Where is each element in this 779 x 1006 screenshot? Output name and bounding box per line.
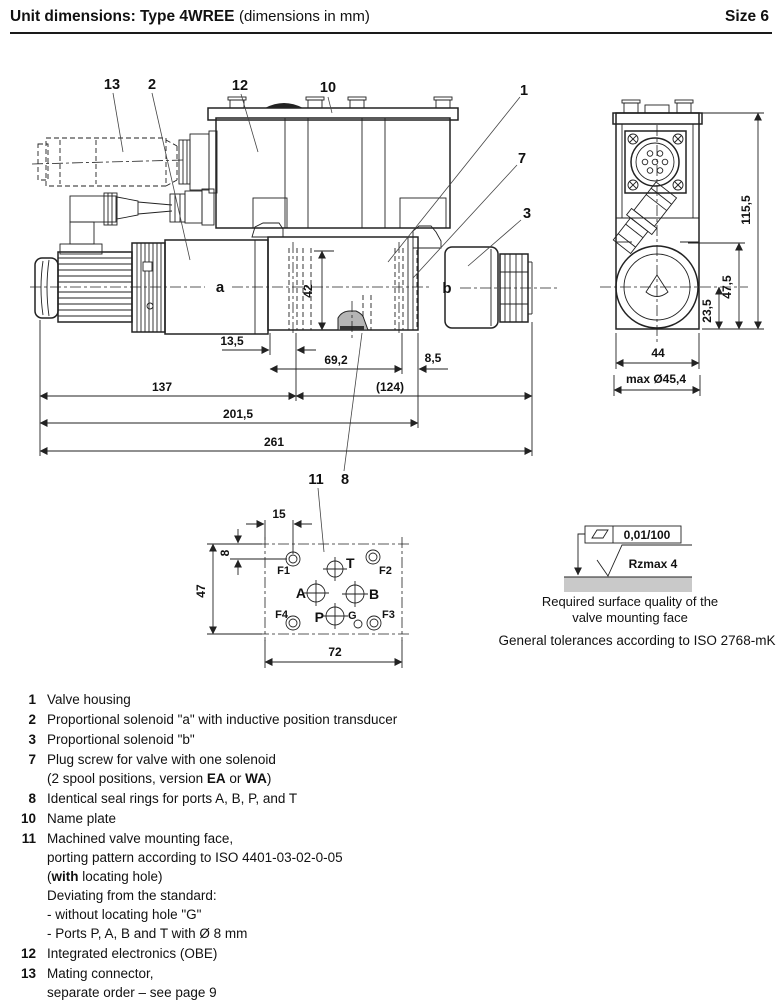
legend-item-10: 10Name plate (10, 809, 570, 828)
legend-item-7: 7Plug screw for valve with one solenoid(… (10, 750, 570, 788)
callout-1: 1 (520, 83, 528, 99)
callout-2: 2 (148, 77, 156, 93)
dim-max-diameter: max Ø45,4 (614, 372, 700, 396)
callout-7: 7 (518, 151, 526, 167)
dim-137: 137 (40, 380, 296, 396)
legend-item-text: Integrated electronics (OBE) (47, 944, 217, 963)
legend-item-number: 10 (10, 809, 36, 828)
callout-10: 10 (320, 80, 336, 96)
dim-15: 15 (246, 507, 312, 554)
port-label-F3: F3 (382, 609, 395, 621)
legend-item-number: 2 (10, 710, 36, 729)
svg-text:137: 137 (152, 380, 172, 394)
mating-connector-dashed (32, 138, 184, 186)
callout-8: 8 (341, 472, 349, 488)
round-connector-7pin (631, 138, 679, 186)
legend-item-text: Plug screw for valve with one solenoid(2… (47, 750, 276, 788)
svg-text:42: 42 (301, 284, 315, 298)
legend-item-13: 13Mating connector,separate order – see … (10, 964, 570, 1002)
legend-item-text: Name plate (47, 809, 116, 828)
flatness-value: 0,01/100 (624, 528, 671, 542)
svg-text:15: 15 (272, 507, 286, 521)
dim-47-5: 47,5 (688, 243, 745, 329)
dim-72: 72 (265, 640, 402, 668)
dim-44: 44 (616, 333, 699, 369)
svg-text:47: 47 (194, 584, 208, 598)
flatness-symbol (592, 530, 608, 538)
legend-item-number: 13 (10, 964, 36, 1002)
solenoid-b (445, 247, 532, 328)
svg-text:8: 8 (218, 549, 232, 556)
callout-3: 3 (523, 206, 531, 222)
mounting-face-view: T A B P G F1 F2 F4 F3 15 8 (194, 507, 409, 668)
callout-12: 12 (232, 78, 248, 94)
svg-text:47,5: 47,5 (720, 275, 734, 299)
obe-electronics-box (208, 97, 458, 228)
svg-text:72: 72 (328, 645, 342, 659)
legend-item-2: 2Proportional solenoid "a" with inductiv… (10, 710, 570, 729)
port-label-T: T (346, 555, 355, 571)
port-label-F4: F4 (275, 609, 289, 621)
dim-42: 42 (301, 251, 334, 330)
legend-list: 1Valve housing2Proportional solenoid "a"… (10, 690, 570, 1003)
surface-quality-note: 0,01/100 Rzmax 4 Required surface qualit… (499, 526, 776, 648)
port-label-P: P (315, 609, 324, 625)
surface-caption-2: valve mounting face (572, 610, 688, 625)
solenoid-b-label: b (442, 280, 451, 297)
legend-item-12: 12Integrated electronics (OBE) (10, 944, 570, 963)
port-label-F2: F2 (379, 565, 392, 577)
surface-bar (564, 577, 692, 592)
dim-47: 47 (194, 544, 262, 634)
svg-text:(124): (124) (376, 380, 404, 394)
name-plate (265, 103, 303, 108)
surface-caption-1: Required surface quality of the (542, 594, 718, 609)
cover-screws (228, 97, 452, 108)
callout-13: 13 (104, 77, 120, 93)
legend-item-11: 11Machined valve mounting face,porting p… (10, 829, 570, 943)
port-crosshairs (303, 557, 368, 629)
side-view: 115,5 47,5 23,5 44 max Ø45,4 (600, 100, 764, 396)
svg-text:max Ø45,4: max Ø45,4 (626, 372, 686, 386)
callout-11: 11 (308, 472, 323, 488)
dim-69-2: 69,2 (270, 353, 402, 369)
port-label-B: B (369, 586, 379, 602)
extension-lines (40, 320, 532, 456)
dim-261: 261 (40, 435, 532, 451)
legend-item-text: Proportional solenoid "b" (47, 730, 195, 749)
svg-text:115,5: 115,5 (739, 195, 753, 225)
svg-text:13,5: 13,5 (220, 334, 244, 348)
legend-item-1: 1Valve housing (10, 690, 570, 709)
svg-text:8,5: 8,5 (425, 351, 442, 365)
dim-201-5: 201,5 (40, 407, 418, 423)
legend-item-text: Mating connector,separate order – see pa… (47, 964, 217, 1002)
dim-8-5: 8,5 (419, 351, 448, 369)
legend-item-text: Valve housing (47, 690, 131, 709)
legend-item-number: 12 (10, 944, 36, 963)
legend-item-number: 1 (10, 690, 36, 709)
legend-item-number: 7 (10, 750, 36, 788)
svg-text:23,5: 23,5 (700, 299, 714, 323)
solenoid-a-label: a (216, 279, 225, 296)
svg-text:261: 261 (264, 435, 284, 449)
legend-item-text: Machined valve mounting face,porting pat… (47, 829, 343, 943)
datasheet-page: Unit dimensions: Type 4WREE (dimensions … (0, 0, 779, 1006)
legend-item-number: 11 (10, 829, 36, 943)
legend-item-text: Identical seal rings for ports A, B, P, … (47, 789, 297, 808)
roughness-value: Rzmax 4 (629, 557, 678, 571)
transducer-receptacle (179, 131, 217, 193)
port-label-F1: F1 (277, 565, 290, 577)
connector-plate (625, 131, 686, 193)
svg-text:201,5: 201,5 (223, 407, 253, 421)
dim-124: (124) (296, 380, 532, 396)
technical-drawing: a b 13 2 12 10 1 7 3 11 8 (0, 0, 779, 690)
svg-text:44: 44 (651, 346, 665, 360)
legend-item-text: Proportional solenoid "a" with inductive… (47, 710, 397, 729)
legend-item-8: 8Identical seal rings for ports A, B, P,… (10, 789, 570, 808)
svg-text:69,2: 69,2 (324, 353, 348, 367)
main-view: a b 13 2 12 10 1 7 3 11 8 (30, 77, 560, 552)
dim-13-5: 13,5 (220, 334, 316, 350)
legend-item-number: 3 (10, 730, 36, 749)
dim-23-5: 23,5 (700, 287, 719, 329)
seal-ring (338, 301, 368, 340)
legend-item-3: 3Proportional solenoid "b" (10, 730, 570, 749)
general-tolerances-note: General tolerances according to ISO 2768… (499, 633, 776, 648)
port-label-A: A (296, 585, 306, 601)
legend-item-number: 8 (10, 789, 36, 808)
port-label-G: G (348, 610, 357, 622)
